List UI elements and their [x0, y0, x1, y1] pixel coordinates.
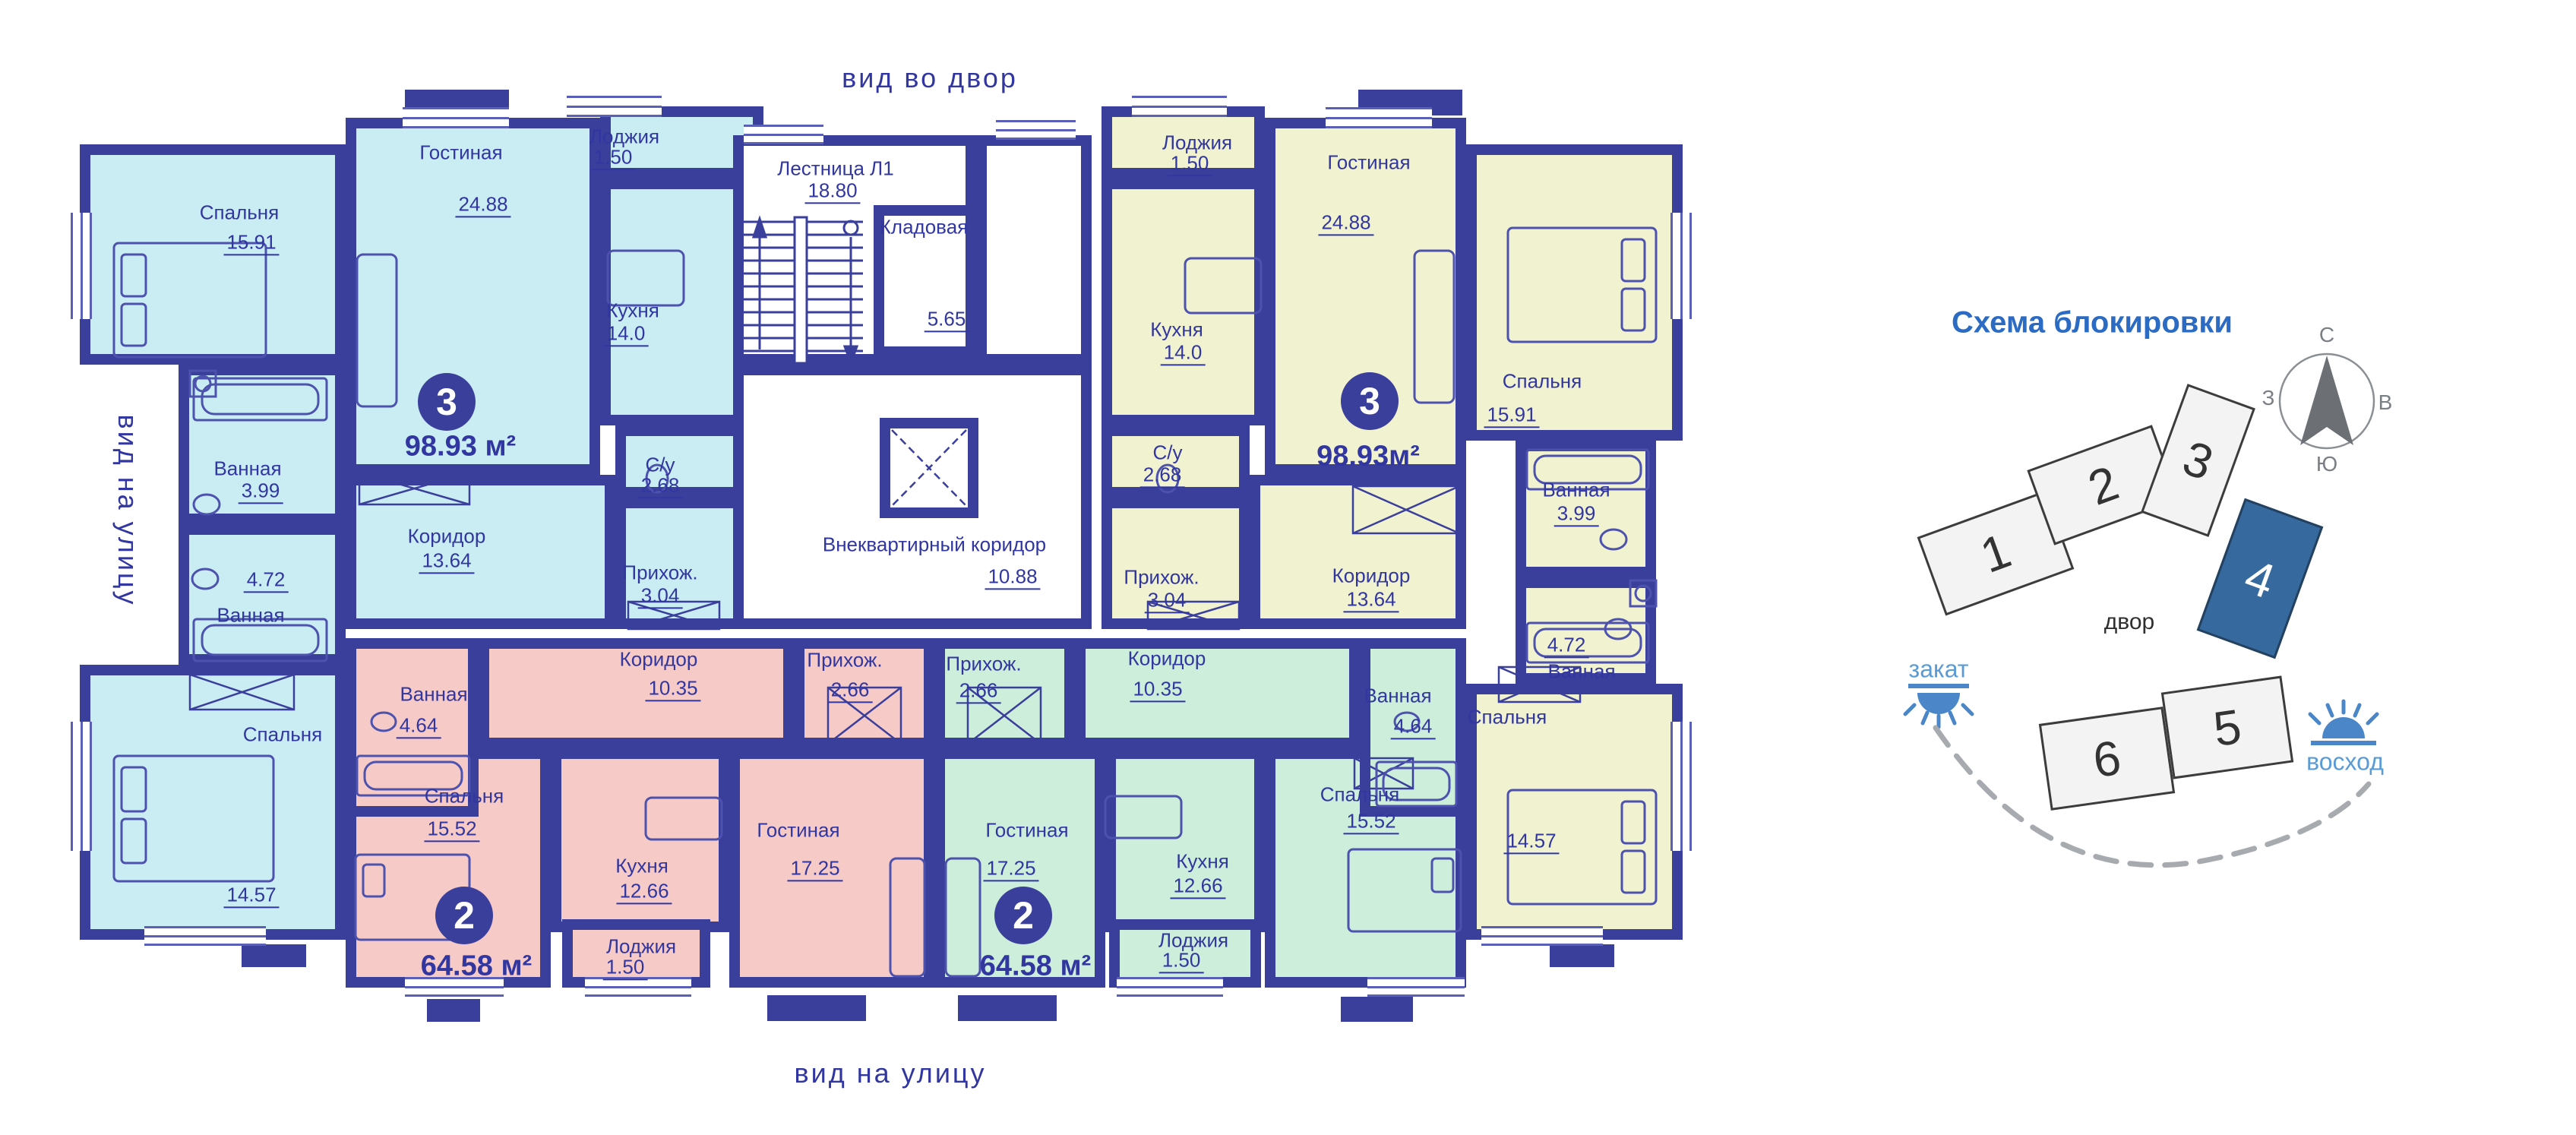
sunset-label: закат — [1909, 656, 1969, 684]
window — [144, 926, 266, 946]
room-area: 2.68 — [1140, 464, 1185, 488]
room-label: Кухня — [615, 855, 668, 876]
room-living-apt3-left — [346, 118, 600, 475]
apartment-badge-apt2-right[interactable]: 2 — [994, 887, 1052, 944]
room-area: 15.52 — [424, 818, 479, 842]
room-area: 17.25 — [983, 858, 1038, 881]
block-number: 3 — [2176, 429, 2220, 492]
window — [1481, 926, 1603, 946]
block-number: 2 — [2081, 454, 2126, 517]
compass-west: З — [2262, 386, 2275, 410]
room-label: Коридор — [1332, 565, 1411, 586]
room-label: Лестница Л1 — [777, 158, 893, 179]
room-area: 15.91 — [1484, 404, 1539, 428]
window — [567, 96, 662, 117]
room-area: 3.04 — [1145, 590, 1190, 613]
balcony-slab — [1550, 944, 1614, 967]
room-area: 1.50 — [591, 147, 636, 170]
room-label: Коридор — [620, 649, 698, 669]
room-label: Гостиная — [1327, 152, 1410, 172]
room-corridor-apt3-left — [346, 475, 615, 629]
room-area: 17.25 — [787, 858, 842, 881]
window — [1670, 213, 1692, 319]
apartment-area-apt3-left: 98.93 м² — [405, 431, 516, 463]
room-label: Прихож. — [622, 562, 697, 583]
apartment-badge-apt3-right[interactable]: 3 — [1341, 372, 1399, 430]
room-label: Кухня — [1176, 851, 1229, 871]
block-number: 1 — [1974, 522, 2018, 584]
room-area: 15.52 — [1343, 811, 1399, 834]
apartment-number: 2 — [454, 893, 475, 937]
room-area: 14.57 — [1503, 830, 1559, 854]
room-area: 2.66 — [828, 679, 873, 703]
schema-block-5[interactable]: 5 — [2161, 675, 2293, 779]
room-area: 3.99 — [1554, 503, 1599, 526]
view-title-top: вид во двор — [842, 62, 1018, 94]
window — [403, 107, 509, 128]
schema-title: Схема блокировки — [1952, 306, 2233, 340]
room-label: Ванная — [217, 605, 284, 625]
compass-east: В — [2378, 390, 2393, 415]
balcony-slab — [958, 995, 1057, 1021]
room-label: Спальня — [1468, 707, 1547, 727]
window — [71, 722, 92, 851]
room-area: 14.0 — [604, 323, 649, 346]
window — [71, 213, 92, 319]
room-label: Спальня — [1320, 784, 1399, 805]
room-area: 4.64 — [1391, 716, 1436, 739]
room-label: Коридор — [1128, 648, 1206, 669]
room-label: Ванная — [1542, 479, 1610, 500]
room-label: Ванная — [213, 458, 281, 479]
room-kitchen-apt2-left — [551, 748, 729, 932]
room-area: 15.91 — [223, 232, 279, 255]
window — [1132, 96, 1227, 117]
apartment-number: 2 — [1013, 893, 1034, 937]
room-label: Спальня — [1503, 371, 1582, 391]
apartment-badge-apt3-left[interactable]: 3 — [418, 373, 476, 431]
room-label: Лоджия — [1162, 132, 1232, 153]
balcony-slab — [242, 944, 306, 967]
room-label: Спальня — [425, 786, 504, 806]
room-bath-bottom-apt3-left — [179, 524, 346, 665]
room-area: 2.66 — [956, 680, 1001, 703]
room-area: 5.65 — [925, 308, 969, 332]
room-label: С/у — [646, 454, 675, 475]
room-lobby — [976, 135, 1092, 365]
window — [1117, 977, 1223, 997]
room-label: Кладовая — [880, 217, 968, 237]
room-label: Гостиная — [419, 142, 502, 163]
schema-block-6[interactable]: 6 — [2039, 707, 2175, 811]
room-label: Прихож. — [1124, 567, 1199, 587]
room-kitchen-apt3-right — [1102, 179, 1265, 425]
room-area: 3.99 — [239, 480, 283, 504]
apartment-area-apt3-right: 98.93м² — [1316, 441, 1420, 473]
room-corridor-apt2-right — [1075, 638, 1360, 748]
elevator-shaft — [880, 418, 978, 518]
room-area: 10.35 — [645, 678, 700, 701]
window — [1367, 977, 1465, 997]
room-area: 14.57 — [223, 884, 279, 908]
room-area: 4.72 — [1544, 634, 1589, 658]
room-label: Спальня — [200, 202, 279, 223]
room-label: Гостиная — [757, 820, 839, 840]
room-label: Внеквартирный коридор — [823, 534, 1046, 555]
view-title-left: вид на улицу — [112, 414, 144, 606]
room-area: 12.66 — [616, 880, 672, 904]
apartment-area-apt2-right: 64.58 м² — [980, 950, 1091, 983]
room-label: Кухня — [606, 300, 659, 321]
room-label: Лоджия — [606, 936, 676, 956]
room-label: Прихож. — [807, 650, 882, 670]
block-number: 5 — [2210, 697, 2245, 757]
room-area: 10.35 — [1130, 678, 1185, 702]
apartment-badge-apt2-left[interactable]: 2 — [435, 887, 493, 944]
window — [1326, 107, 1432, 128]
block-number: 4 — [2238, 548, 2283, 610]
room-area: 13.64 — [419, 550, 474, 574]
room-area: 24.88 — [455, 194, 510, 217]
room-label: Спальня — [243, 724, 322, 745]
schema-block-4[interactable]: 4 — [2197, 498, 2324, 659]
sunrise-icon — [2310, 701, 2377, 745]
apartment-area-apt2-left: 64.58 м² — [421, 950, 532, 983]
window — [1670, 722, 1692, 851]
balcony-slab — [1341, 997, 1413, 1022]
compass-south: Ю — [2316, 452, 2337, 476]
room-area: 2.68 — [638, 475, 683, 498]
room-area: 4.72 — [244, 569, 289, 593]
balcony-slab — [427, 999, 480, 1022]
room-area: 3.04 — [638, 585, 683, 609]
room-kitchen-apt2-right — [1105, 748, 1265, 932]
window — [996, 120, 1076, 140]
block-number: 6 — [2090, 729, 2125, 788]
room-area: 4.64 — [397, 715, 441, 738]
compass-north: С — [2319, 323, 2334, 347]
room-area: 1.50 — [603, 956, 648, 980]
room-label: Лоджия — [589, 126, 659, 147]
room-area: 12.66 — [1170, 875, 1225, 899]
room-label: Ванная — [400, 684, 467, 704]
apartment-number: 3 — [436, 380, 457, 424]
compass-icon — [2280, 354, 2374, 448]
room-area: 13.64 — [1343, 589, 1399, 612]
room-bedroom-top-apt3-right — [1466, 144, 1683, 441]
room-area: 1.50 — [1159, 950, 1204, 973]
room-area: 24.88 — [1318, 212, 1373, 236]
courtyard-label: двор — [2104, 609, 2154, 635]
sunset-icon — [1905, 684, 1972, 727]
room-label: Ванная — [1547, 661, 1615, 681]
sunrise-label: восход — [2306, 748, 2384, 776]
room-label: Гостиная — [985, 820, 1068, 840]
balcony-slab — [767, 995, 866, 1021]
view-title-bottom: вид на улицу — [794, 1058, 986, 1089]
room-bedroom-top-apt3-left — [80, 144, 346, 365]
room-area: 1.50 — [1168, 153, 1212, 176]
window — [744, 125, 823, 144]
room-bedroom-bottom-apt3-left — [80, 665, 346, 940]
floorplan-page: вид во двор вид на улицу вид на улицу — [0, 0, 2576, 1135]
room-label: Кухня — [1150, 319, 1203, 340]
room-area: 10.88 — [985, 566, 1040, 590]
room-label: Прихож. — [946, 653, 1021, 674]
room-label: Ванная — [1364, 685, 1431, 706]
room-area: 18.80 — [804, 180, 860, 204]
room-label: Коридор — [408, 526, 486, 546]
room-label: С/у — [1153, 442, 1183, 463]
apartment-number: 3 — [1359, 379, 1380, 423]
room-area: 14.0 — [1161, 342, 1206, 365]
